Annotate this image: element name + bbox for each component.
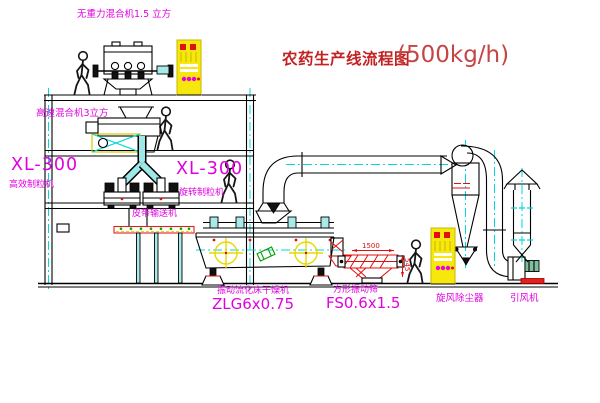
cyclone-label: 旋风除尘器 <box>436 294 484 304</box>
fluid-bed-dryer-drawing <box>196 217 345 285</box>
gravity-mixer-drawing <box>93 42 173 95</box>
ground-line <box>38 284 558 288</box>
cyclone-outlet-pipe <box>461 146 513 277</box>
high-speed-mixer-label: 高速混合机3立方 <box>36 109 109 119</box>
square-sieve-drawing <box>329 249 404 283</box>
exhaust-duct-drawing <box>256 152 452 223</box>
granulator-center-name-label: 旋转制粒机 <box>179 189 224 198</box>
control-cabinet-right <box>431 228 455 284</box>
sieve-length-dimension: 1500 <box>362 243 380 250</box>
sieve-model-label: FS0.6x1.5 <box>326 296 400 311</box>
control-cabinet-top <box>177 40 201 95</box>
gravity-mixer-label: 无重力混合机1.5 立方 <box>77 10 171 20</box>
draft-fan-drawing <box>508 257 544 284</box>
granulator-left-name-label: 高效制粒机 <box>9 181 54 190</box>
process-flow-diagram: 无重力混合机1.5 立方 农药生产线流程图 (500kg/h) 高速混合机3立方… <box>0 0 600 403</box>
diagram-title: 农药生产线流程图 <box>282 52 410 68</box>
draft-fan-label: 引风机 <box>510 294 539 304</box>
belt-conveyor-label: 皮带输送机 <box>132 210 177 219</box>
feed-pipe-y-splitter <box>123 136 161 183</box>
belt-conveyor-drawing <box>57 209 194 284</box>
dryer-model-label: ZLG6x0.75 <box>212 297 294 312</box>
sieve-height-dimension: 545 <box>403 258 410 271</box>
granulator-left-model-label: XL-300 <box>11 157 78 175</box>
diagram-title-capacity: (500kg/h) <box>397 44 509 67</box>
exhaust-stack-drawing <box>504 168 540 262</box>
granulator-center-model-label: XL-300 <box>176 161 243 179</box>
